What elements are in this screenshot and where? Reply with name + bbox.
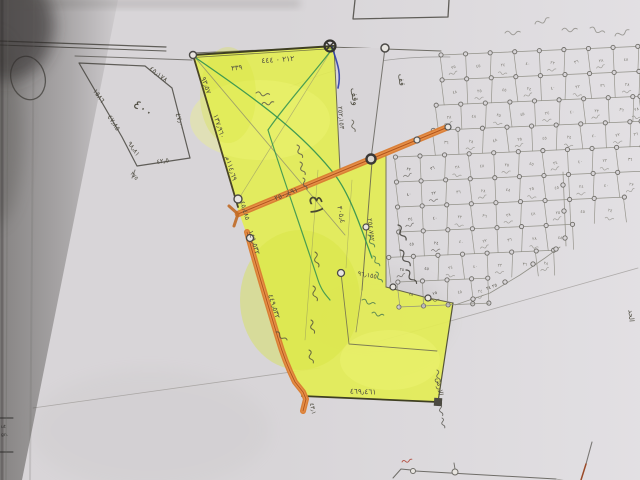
- survey-point: [387, 255, 391, 259]
- annotation-south-edge-len: ٤٦٩٫٤٦١: [350, 387, 377, 397]
- survey-point: [442, 153, 446, 157]
- plot-number: ٢٤: [579, 184, 584, 189]
- survey-point: [538, 73, 542, 77]
- survey-point: [394, 180, 398, 184]
- survey-point: [566, 172, 570, 176]
- survey-point: [581, 97, 585, 101]
- survey-point: [414, 137, 420, 143]
- survey-point: [508, 100, 512, 104]
- survey-point: [534, 249, 538, 253]
- survey-point: [563, 72, 567, 76]
- survey-point: [338, 270, 345, 277]
- survey-point: [411, 254, 415, 258]
- survey-point: [591, 171, 595, 175]
- survey-point: [557, 98, 561, 102]
- survey-point: [636, 44, 640, 48]
- survey-point: [485, 251, 489, 255]
- survey-point: [562, 47, 566, 51]
- plot-number: ٤٠: [604, 183, 609, 188]
- highlight-texture: [340, 330, 440, 390]
- survey-point: [541, 148, 545, 152]
- survey-point: [614, 145, 618, 149]
- survey-point: [603, 121, 607, 125]
- survey-point: [493, 176, 497, 180]
- top-edge-shade: [0, 0, 300, 7]
- survey-point: [495, 225, 499, 229]
- survey-map-canvas: ٢٥٤٥٢٤٤٠٢٢٣٦٢٨٤٨٤٨٢٥٤٥٢٤٤٠٢٢٣٦٢٨٢٨٤٨٢٥٤٥…: [0, 0, 640, 480]
- survey-point: [570, 222, 574, 226]
- plot-number: ٤٥: [542, 135, 547, 140]
- survey-point: [460, 252, 464, 256]
- survey-point: [516, 149, 520, 153]
- survey-point: [463, 52, 467, 56]
- survey-point: [622, 195, 626, 199]
- survey-point: [543, 198, 547, 202]
- survey-point: [615, 170, 619, 174]
- plot-number: ٢٥: [517, 136, 522, 142]
- survey-point: [612, 70, 616, 74]
- survey-point: [531, 262, 535, 266]
- survey-point: [464, 77, 468, 81]
- survey-point: [470, 227, 474, 231]
- survey-point: [631, 94, 635, 98]
- survey-point: [468, 177, 472, 181]
- survey-point: [420, 279, 424, 283]
- survey-point: [628, 120, 632, 124]
- survey-point: [554, 123, 558, 127]
- survey-point: [611, 45, 615, 49]
- survey-point: [395, 205, 399, 209]
- survey-point: [446, 228, 450, 232]
- survey-point: [419, 179, 423, 183]
- survey-point: [542, 173, 546, 177]
- survey-point: [440, 78, 444, 82]
- survey-point: [518, 199, 522, 203]
- survey-point: [519, 224, 523, 228]
- survey-point: [529, 124, 533, 128]
- survey-point: [396, 280, 400, 284]
- survey-point: [509, 250, 513, 254]
- survey-point: [459, 102, 463, 106]
- survey-point: [492, 151, 496, 155]
- survey-point: [606, 96, 610, 100]
- survey-point: [587, 71, 591, 75]
- survey-point: [561, 183, 565, 187]
- survey-point: [567, 197, 571, 201]
- survey-point-junction: [367, 155, 376, 164]
- survey-point: [445, 203, 449, 207]
- survey-point: [513, 50, 517, 54]
- survey-point: [586, 46, 590, 50]
- plot-number: ٤٠: [433, 215, 438, 220]
- plot-number: ٤٠: [525, 61, 530, 66]
- survey-point: [489, 76, 493, 80]
- annotation-wedge-word-2: قف: [396, 73, 406, 86]
- survey-point: [390, 284, 396, 290]
- plot-number: ٢٤: [434, 240, 439, 245]
- plot-number: ٢٥: [399, 267, 404, 272]
- survey-point: [443, 178, 447, 182]
- survey-point: [532, 99, 536, 103]
- survey-point: [411, 469, 416, 474]
- plot-number: ٢٥: [477, 88, 482, 93]
- plot-number: ٤٠: [570, 109, 575, 114]
- plot-number: ٢٤: [478, 288, 483, 293]
- survey-point: [579, 122, 583, 126]
- survey-point: [439, 53, 443, 57]
- survey-point: [544, 223, 548, 227]
- survey-point: [393, 155, 397, 159]
- annotation-top-edge-len2: ٣٣٩: [231, 63, 243, 72]
- survey-point: [488, 51, 492, 55]
- survey-point: [565, 147, 569, 151]
- plot-number: ٤٥: [409, 241, 414, 246]
- plot-number: ٢٤: [567, 134, 572, 139]
- survey-point: [471, 297, 475, 301]
- survey-point: [445, 124, 451, 130]
- map-photo: ٢٥٤٥٢٤٤٠٢٢٣٦٢٨٤٨٤٨٢٥٤٥٢٤٤٠٢٢٣٦٢٨٢٨٤٨٢٥٤٥…: [0, 0, 640, 480]
- survey-point: [445, 278, 449, 282]
- plot-number: ٤٥: [502, 87, 507, 92]
- survey-point: [469, 202, 473, 206]
- plot-number: ٤٥: [580, 209, 585, 214]
- survey-point: [517, 174, 521, 178]
- survey-point: [467, 152, 471, 156]
- survey-point: [425, 295, 431, 301]
- survey-point: [505, 125, 509, 129]
- survey-point: [592, 196, 596, 200]
- annotation-right-margin: الحد: [626, 309, 635, 322]
- survey-point: [590, 146, 594, 150]
- survey-point: [537, 48, 541, 52]
- survey-point: [503, 280, 507, 284]
- survey-point: [554, 247, 558, 251]
- survey-point: [418, 154, 422, 158]
- survey-point: [480, 126, 484, 130]
- plot-number: ٢٥: [556, 210, 561, 215]
- survey-point: [381, 44, 389, 52]
- survey-point: [452, 469, 458, 475]
- survey-point: [563, 236, 567, 240]
- survey-point: [421, 229, 425, 233]
- survey-point: [514, 75, 518, 79]
- survey-point: [456, 127, 460, 131]
- survey-point: [486, 276, 490, 280]
- survey-point: [436, 253, 440, 257]
- survey-point: [494, 201, 498, 205]
- plot-number: ٢٤: [407, 216, 412, 222]
- plot-number: ٢٤: [501, 62, 506, 67]
- plot-number: ٤٠: [472, 263, 477, 269]
- survey-point: [190, 52, 197, 59]
- survey-point: [562, 209, 566, 213]
- survey-point: [434, 103, 438, 107]
- survey-point: [469, 277, 473, 281]
- annotation-parcel-number: ٤١: [304, 194, 330, 217]
- survey-point: [483, 101, 487, 105]
- survey-point: [420, 204, 424, 208]
- plot-number: ٢٥: [504, 162, 509, 167]
